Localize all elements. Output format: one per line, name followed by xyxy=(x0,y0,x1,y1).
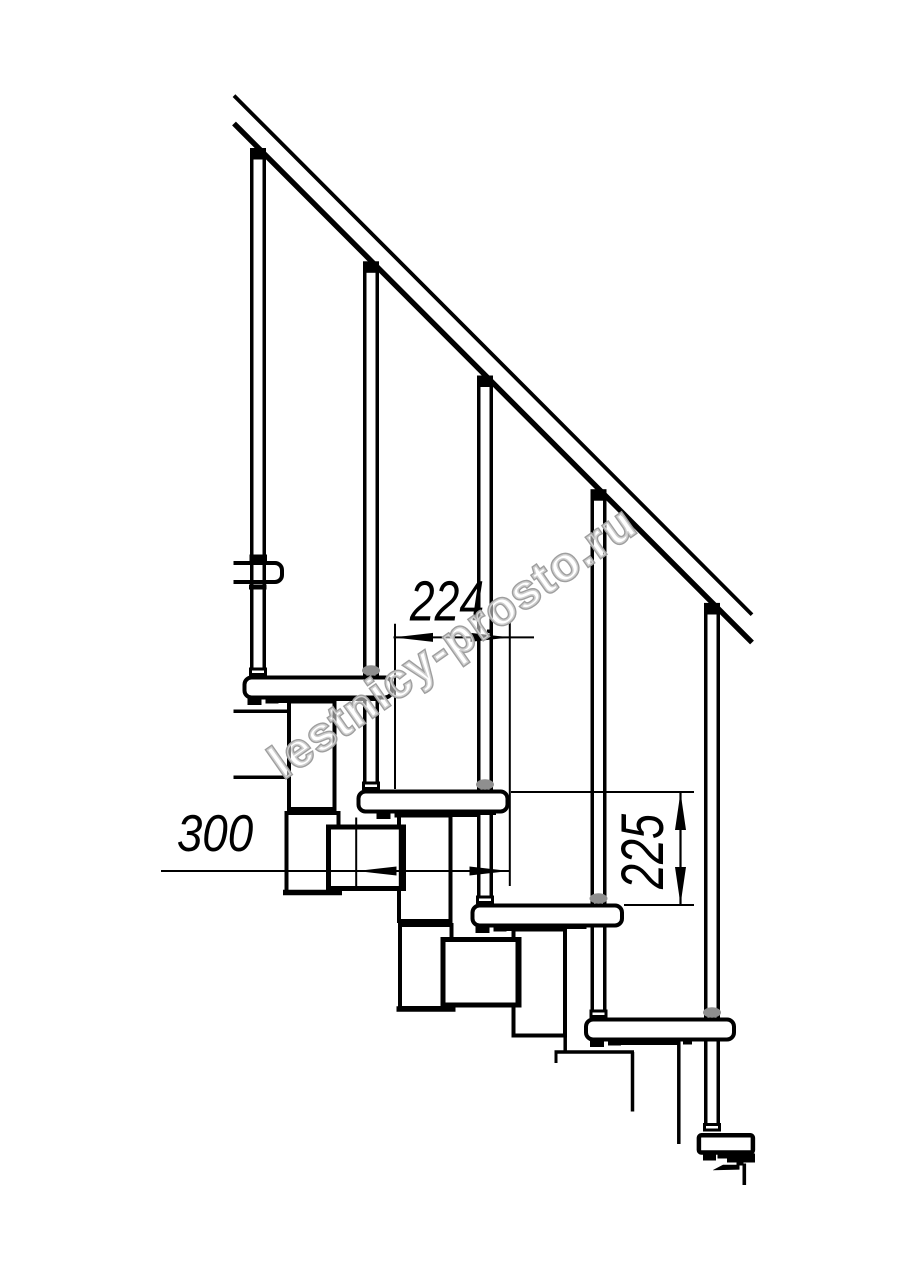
svg-text:300: 300 xyxy=(177,805,253,862)
svg-text:225: 225 xyxy=(610,814,677,890)
